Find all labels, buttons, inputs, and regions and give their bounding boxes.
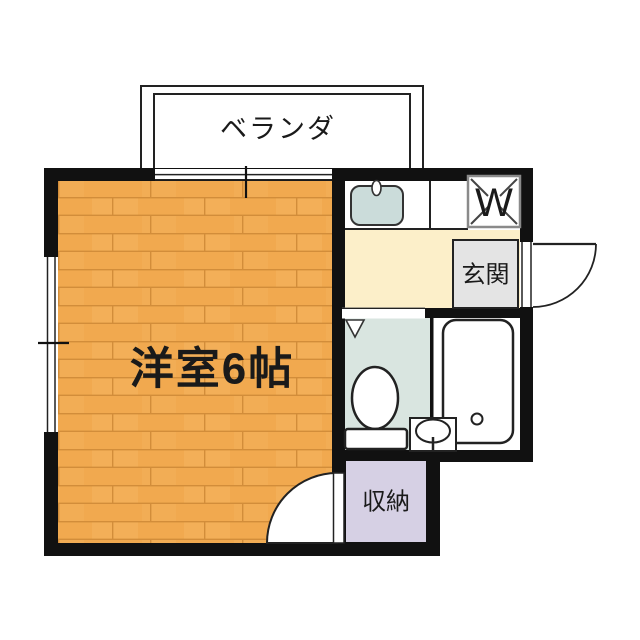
toilet-bowl [352, 367, 398, 429]
window-left-opening [44, 257, 58, 432]
storage-label: 収納 [362, 489, 410, 516]
entrance-label: 玄関 [462, 262, 510, 289]
bathtub-drain [472, 414, 483, 425]
floorplan-page: ベランダ [0, 0, 640, 640]
balcony-label: ベランダ [220, 114, 336, 144]
balcony: ベランダ [141, 86, 423, 176]
entrance-door-swing-arc [533, 244, 596, 307]
kitchen-area [345, 181, 468, 230]
wall-right [520, 168, 533, 462]
washer-label: W [475, 181, 513, 225]
closet-door-leaf [334, 473, 345, 543]
washer-space: W [468, 176, 520, 227]
toilet-door-opening [342, 308, 425, 319]
wall-storage-right [427, 450, 440, 556]
main-room-label: 洋室6帖 [130, 344, 294, 394]
toilet-tank [345, 429, 407, 449]
entrance-area: 玄関 [453, 240, 596, 308]
floorplan-drawing: ベランダ [0, 0, 640, 640]
wall-bottom [44, 543, 440, 556]
kitchen-faucet [372, 181, 381, 196]
